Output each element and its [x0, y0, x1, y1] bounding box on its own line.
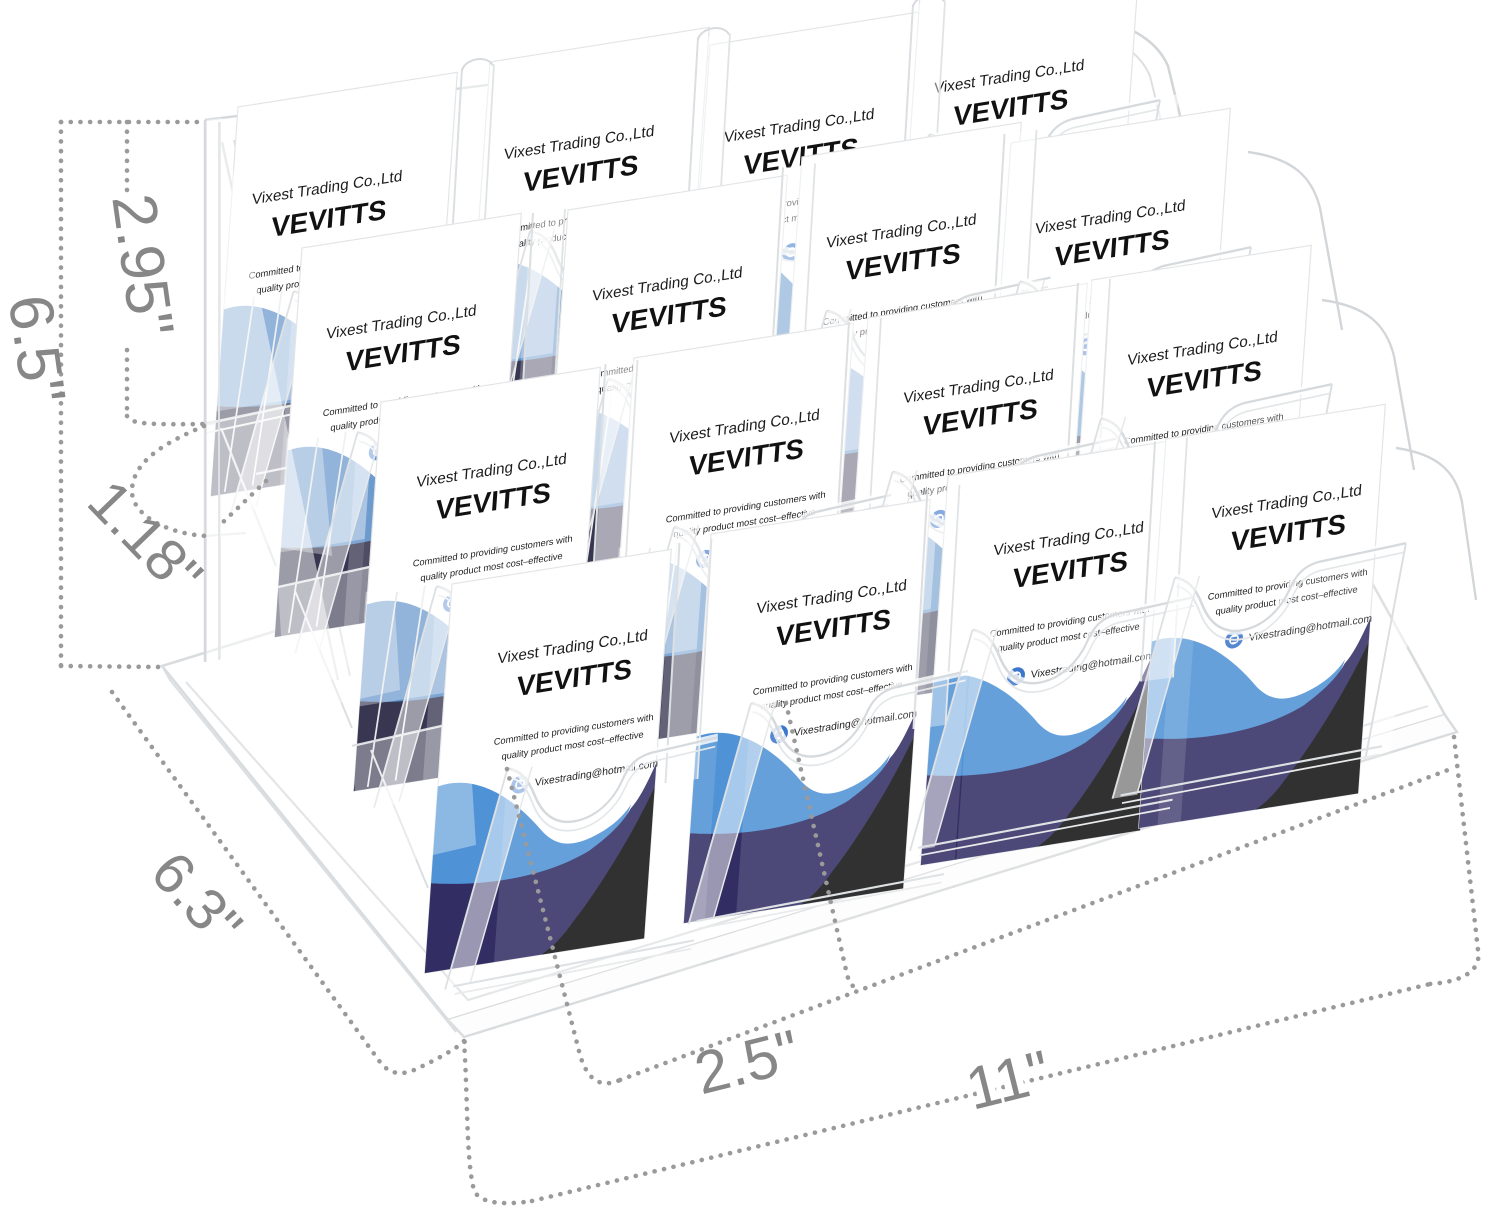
svg-text:6.5": 6.5" — [0, 291, 78, 408]
